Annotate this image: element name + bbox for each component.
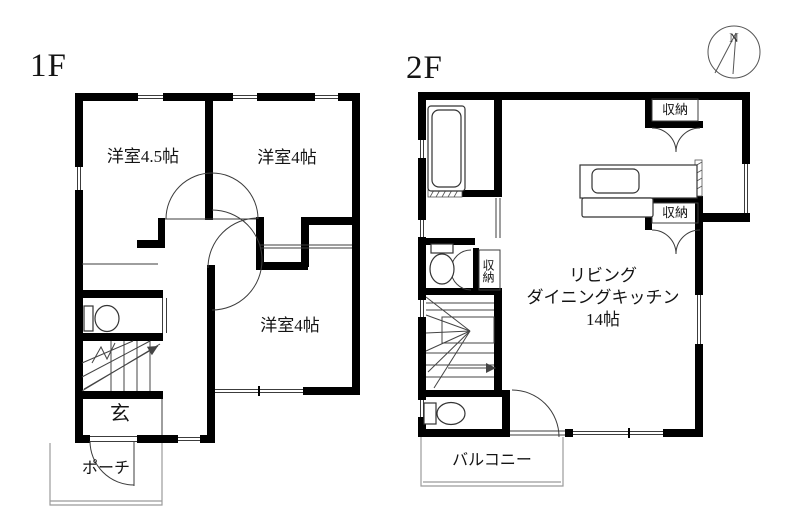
room-label-western-4-top: 洋室4帖 xyxy=(213,148,361,168)
compass-icon: N xyxy=(708,26,760,78)
floor2-title: 2F xyxy=(406,50,466,88)
stairs-1f xyxy=(82,341,160,391)
floorplan-image: N 1F 2F 洋室4.5帖 洋室4帖 洋室4帖 玄 ポーチ 収納 収納 収納 … xyxy=(0,0,800,532)
room-label-storage-top: 収納 xyxy=(652,103,698,118)
bathtub-icon xyxy=(428,106,465,191)
ldk-line1: リビング xyxy=(505,265,701,287)
room-label-ldk: リビング ダイニングキッチン 14帖 xyxy=(505,265,701,331)
floor1-title: 1F xyxy=(30,48,90,86)
room-label-storage-mid: 収納 xyxy=(652,206,698,221)
washstand-2f-icon xyxy=(424,403,465,425)
toilet-2f-icon xyxy=(430,244,454,284)
room-label-western-4-bottom: 洋室4帖 xyxy=(216,316,364,336)
room-label-entrance: 玄 xyxy=(90,403,150,426)
stairs-2f xyxy=(426,297,496,388)
room-label-porch: ポーチ xyxy=(60,460,152,478)
toilet-1f-icon xyxy=(84,306,119,332)
ldk-line3: 14帖 xyxy=(505,309,701,331)
room-label-western-4-5: 洋室4.5帖 xyxy=(82,147,204,167)
room-label-storage-closet: 収納 xyxy=(482,252,494,290)
room-label-balcony: バルコニー xyxy=(421,452,563,470)
ldk-line2: ダイニングキッチン xyxy=(505,287,701,309)
compass-north-label: N xyxy=(729,30,739,45)
